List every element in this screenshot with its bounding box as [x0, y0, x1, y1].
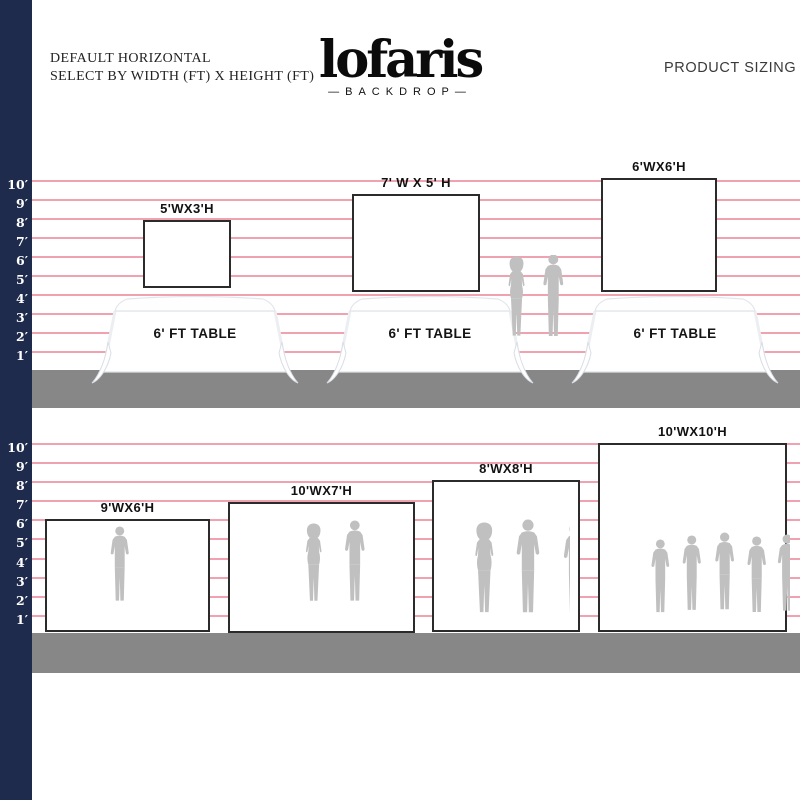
ruler-tick-label: 8′	[0, 479, 28, 493]
ruler-tick-label: 7′	[0, 235, 28, 249]
backdrop-size-label: 10'WX10'H	[598, 424, 787, 439]
backdrop-size-label: 6'WX6'H	[601, 159, 717, 174]
ruler-tick-label: 6′	[0, 254, 28, 268]
backdrop-size-label: 7' W X 5' H	[352, 175, 480, 190]
ruler-tick-label: 5′	[0, 273, 28, 287]
backdrop-box-5x3	[143, 220, 231, 288]
backdrop-box-7x5	[352, 194, 480, 292]
page-title: PRODUCT SIZING	[664, 60, 796, 76]
group-silhouette	[600, 532, 790, 650]
table-size-label: 6' FT TABLE	[565, 326, 785, 341]
left-ruler-bar	[0, 0, 32, 800]
ruler-tick-label: 9′	[0, 197, 28, 211]
single-man-silhouette	[105, 525, 149, 639]
ruler-tick-label: 5′	[0, 536, 28, 550]
logo-dash-left: —	[328, 86, 345, 98]
table-size-label: 6' FT TABLE	[85, 326, 305, 341]
ruler-tick-label: 6′	[0, 517, 28, 531]
ruler-tick-label: 9′	[0, 460, 28, 474]
page-subtitle: DEFAULT HORIZONTAL SELECT BY WIDTH (FT) …	[50, 50, 314, 85]
logo-dash-right: —	[455, 86, 472, 98]
ruler-tick-label: 7′	[0, 498, 28, 512]
backdrop-size-label: 10'WX7'H	[228, 483, 415, 498]
couple-silhouette	[490, 255, 568, 375]
ruler-tick-label: 3′	[0, 575, 28, 589]
product-sizing-page: DEFAULT HORIZONTAL SELECT BY WIDTH (FT) …	[0, 0, 800, 800]
ruler-tick-label: 4′	[0, 556, 28, 570]
ruler-tick-label: 2′	[0, 594, 28, 608]
table-graphic	[85, 296, 305, 388]
ruler-tick-label: 2′	[0, 330, 28, 344]
backdrop-size-label: 5'WX3'H	[143, 201, 231, 216]
logo-backdrop-word: BACKDROP	[345, 86, 455, 98]
table-graphic	[565, 296, 785, 388]
brand-logo: lofaris —BACKDROP—	[290, 34, 510, 98]
ruler-tick-label: 10′	[0, 178, 28, 192]
backdrop-size-label: 8'WX8'H	[432, 461, 580, 476]
backdrop-size-label: 9'WX6'H	[45, 500, 210, 515]
couple-silhouette	[284, 520, 372, 638]
ruler-tick-label: 4′	[0, 292, 28, 306]
subtitle-line-1: DEFAULT HORIZONTAL	[50, 50, 314, 68]
backdrop-box-6x6	[601, 178, 717, 292]
ruler-tick-label: 3′	[0, 311, 28, 325]
ruler-tick-label: 1′	[0, 349, 28, 363]
ruler-tick-label: 1′	[0, 613, 28, 627]
ruler-tick-label: 8′	[0, 216, 28, 230]
trio-silhouette	[434, 517, 570, 647]
ruler-tick-label: 10′	[0, 441, 28, 455]
subtitle-line-2: SELECT BY WIDTH (FT) X HEIGHT (FT)	[50, 68, 314, 86]
brand-logo-wordmark: lofaris	[290, 34, 510, 86]
